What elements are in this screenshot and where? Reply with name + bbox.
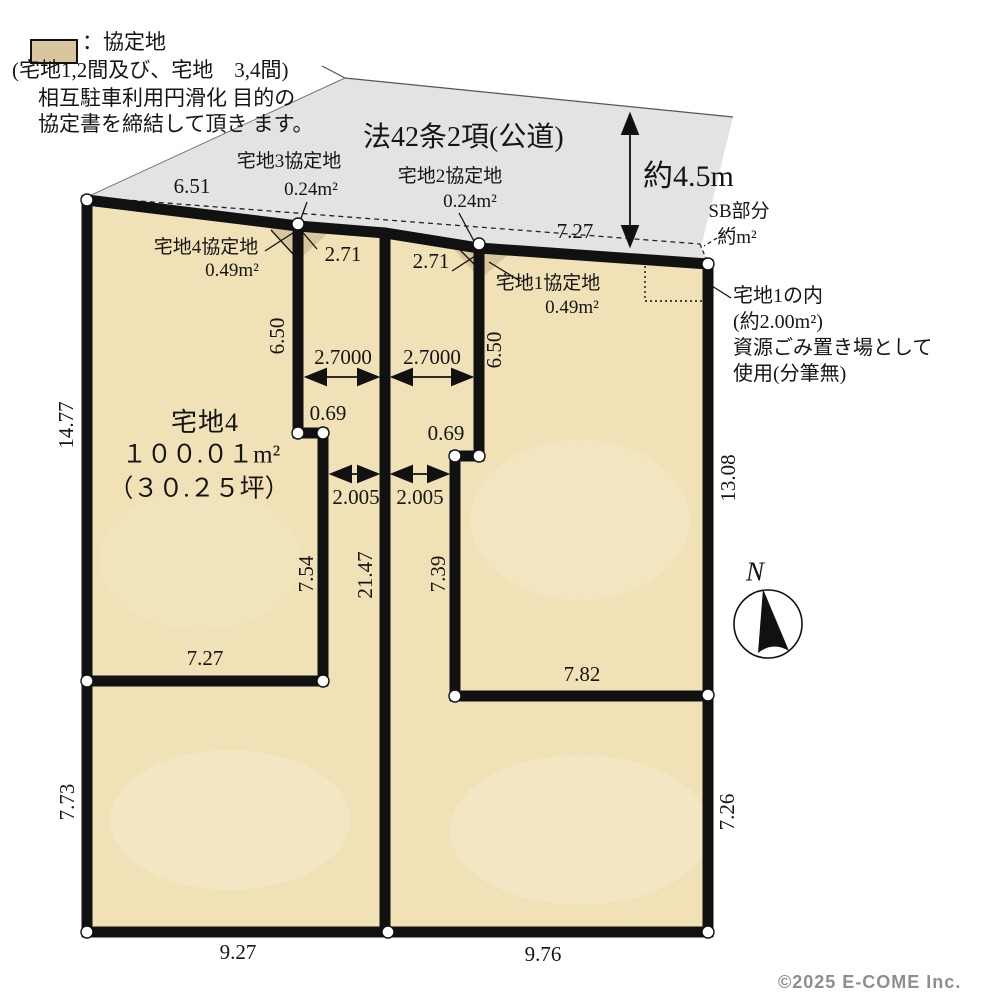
dim-south-right: 9.76 [525,942,562,966]
dim-plot4-south: 7.27 [187,646,224,670]
site-area [87,200,710,932]
agreement-plot3-label: 宅地3協定地 [237,151,342,173]
agreement-plot2-area: 0.24m² [443,191,497,213]
dim-jog-right: 0.69 [428,421,465,445]
agreement-plot4-label: 宅地4協定地 [154,237,259,259]
dim-wall-right-upper: 6.50 [482,332,506,369]
dim-west-upper: 14.77 [54,401,78,448]
north-compass-icon [734,589,802,658]
plot1-note-line1: 宅地1の内 [733,283,823,309]
dim-jog-left: 0.69 [310,401,347,425]
dim-south-left: 9.27 [220,940,257,964]
dim-corridor-right-width-bottom: 2.005 [396,485,443,509]
agreement-plot1-area: 0.49m² [545,297,599,319]
dim-corridor-right-top: 2.71 [413,249,450,273]
dim-corridor-left-width-top: 2.7000 [314,345,372,369]
dim-east-lower: 7.26 [715,794,739,831]
agreement-plot2-label: 宅地2協定地 [398,166,503,188]
road-width-label: 約4.5m [643,160,734,195]
dim-plot1-south: 7.82 [564,662,601,686]
dim-west-lower: 7.73 [55,784,79,821]
setback-label: SB部分 [708,201,769,223]
agreement-plot1-label: 宅地1協定地 [496,273,601,295]
agreement-plot4-area: 0.49m² [205,260,259,282]
dim-center-wall: 21.47 [353,551,377,598]
plot4-tsubo: （３０.２５坪） [108,476,289,505]
land-plot-diagram: ：協定地 (宅地1,2間及び、宅地 3,4間) 相互駐車利用円滑化 目的の 協定… [0,0,1000,1000]
dim-plot4-east-lower: 7.54 [294,556,318,593]
road-label: 法42条2項(公道) [363,122,564,154]
dim-wall-left-upper: 6.50 [265,318,289,355]
plot1-note-line2: (約2.00m²) [733,309,823,335]
copyright-text: ©2025 E-COME Inc. [778,972,961,993]
legend-line-4: 協定書を締結して頂き ます。 [38,112,314,136]
dim-east-upper: 13.08 [716,454,740,501]
legend-title: ：協定地 [82,30,166,54]
compass-north-label: N [746,556,764,587]
dim-plot1-west-lower: 7.39 [426,556,450,593]
plot1-note-line4: 使用(分筆無) [733,361,846,387]
agreement-plot3-area: 0.24m² [284,179,338,201]
plot4-area: １００.０１m² [122,442,280,471]
dim-top-left: 6.51 [174,174,211,198]
legend-line-3: 相互駐車利用円滑化 目的の [38,86,295,110]
setback-area-label: 約m² [717,227,756,249]
dim-corridor-left-top: 2.71 [325,242,362,266]
dim-top-right: 7.27 [557,219,594,243]
dim-corridor-right-width-top: 2.7000 [403,345,461,369]
plot4-name: 宅地4 [171,408,239,438]
legend-line-2: (宅地1,2間及び、宅地 3,4間) [12,58,289,82]
dim-corridor-left-width-bottom: 2.005 [332,485,379,509]
plot1-note-line3: 資源ごみ置き場として [733,335,932,361]
